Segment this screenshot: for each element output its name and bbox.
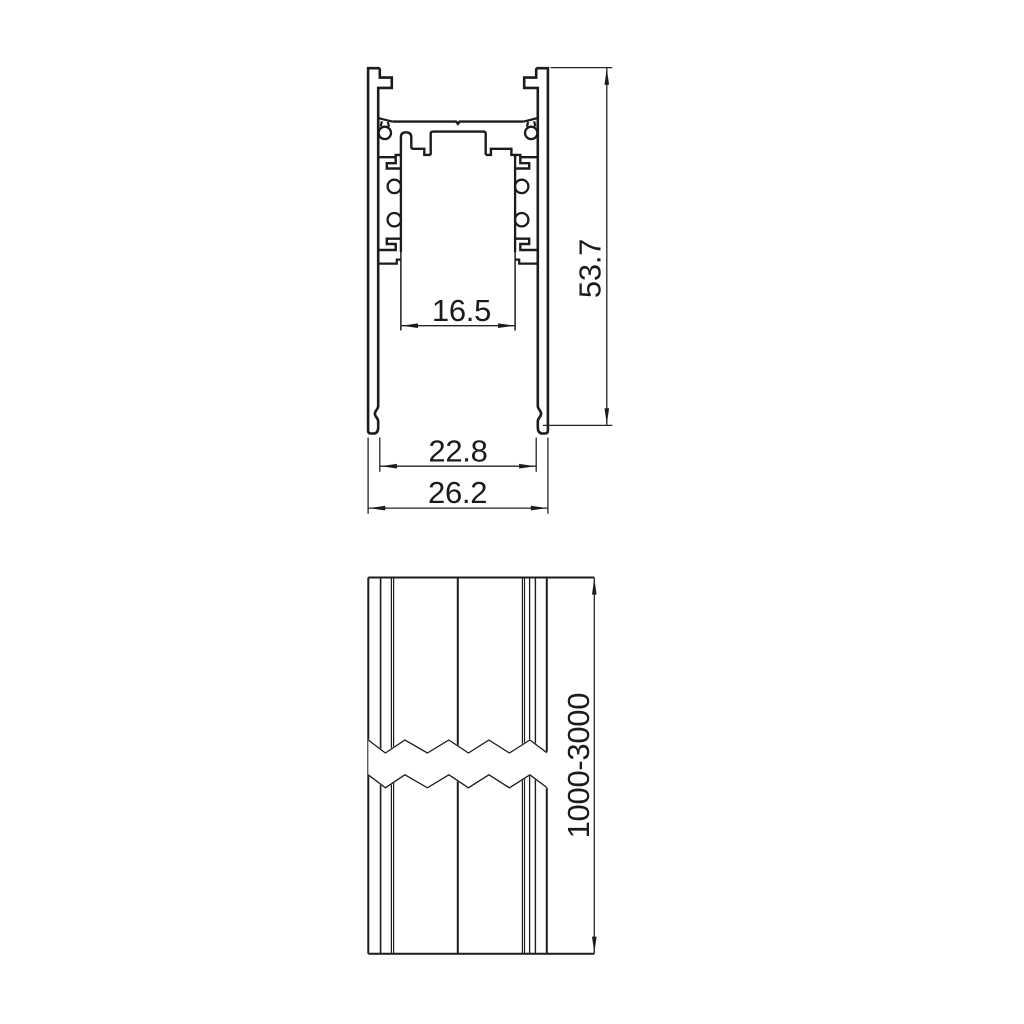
svg-text:1000-3000: 1000-3000: [561, 693, 596, 839]
svg-text:53.7: 53.7: [573, 239, 608, 298]
svg-text:26.2: 26.2: [428, 475, 487, 510]
svg-text:16.5: 16.5: [432, 293, 491, 328]
svg-text:22.8: 22.8: [428, 433, 487, 468]
